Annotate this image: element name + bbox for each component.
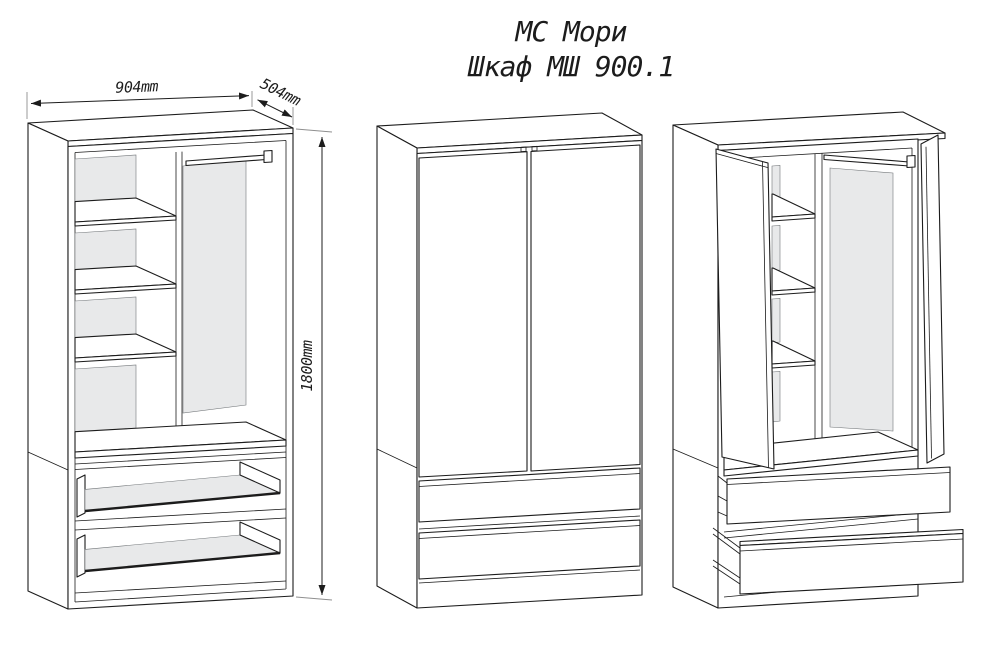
wardrobe-closed-view [377, 113, 642, 608]
back-panel [75, 365, 136, 432]
title-line-1: МС Мори [514, 15, 626, 48]
rail-bracket [907, 156, 915, 168]
wardrobe-technical-drawing: МС Мори Шкаф МШ 900.1 [0, 0, 1000, 645]
drawing-title: МС Мори Шкаф МШ 900.1 [467, 15, 674, 83]
width-dimension-line [31, 96, 249, 104]
wardrobe-open-view [673, 112, 963, 608]
back-panel [75, 155, 136, 202]
left-side-panel [377, 126, 417, 608]
left-side-panel [673, 125, 718, 608]
height-dimension-label: 1800mm [298, 340, 316, 392]
depth-dimension-label: 504mm [257, 74, 304, 109]
back-panel [830, 168, 893, 431]
wardrobe-interior-view: 904mm 504mm 1800mm [27, 74, 332, 609]
door-right-open [921, 135, 944, 463]
back-panel [772, 225, 780, 271]
width-dimension-label: 904mm [115, 77, 159, 97]
drawer-side-left [77, 475, 85, 517]
drawer-side-left [77, 535, 85, 577]
back-panel [772, 298, 780, 343]
left-side-panel [28, 123, 68, 609]
back-panel [75, 229, 136, 271]
door-left [419, 152, 527, 477]
back-panel [183, 159, 246, 413]
rail-bracket [264, 151, 272, 163]
door-right [531, 145, 640, 471]
back-panel [75, 297, 136, 339]
back-panel [772, 165, 780, 198]
title-line-2: Шкаф МШ 900.1 [467, 50, 674, 83]
technical-drawing-page: МС Мори Шкаф МШ 900.1 [0, 0, 1000, 645]
